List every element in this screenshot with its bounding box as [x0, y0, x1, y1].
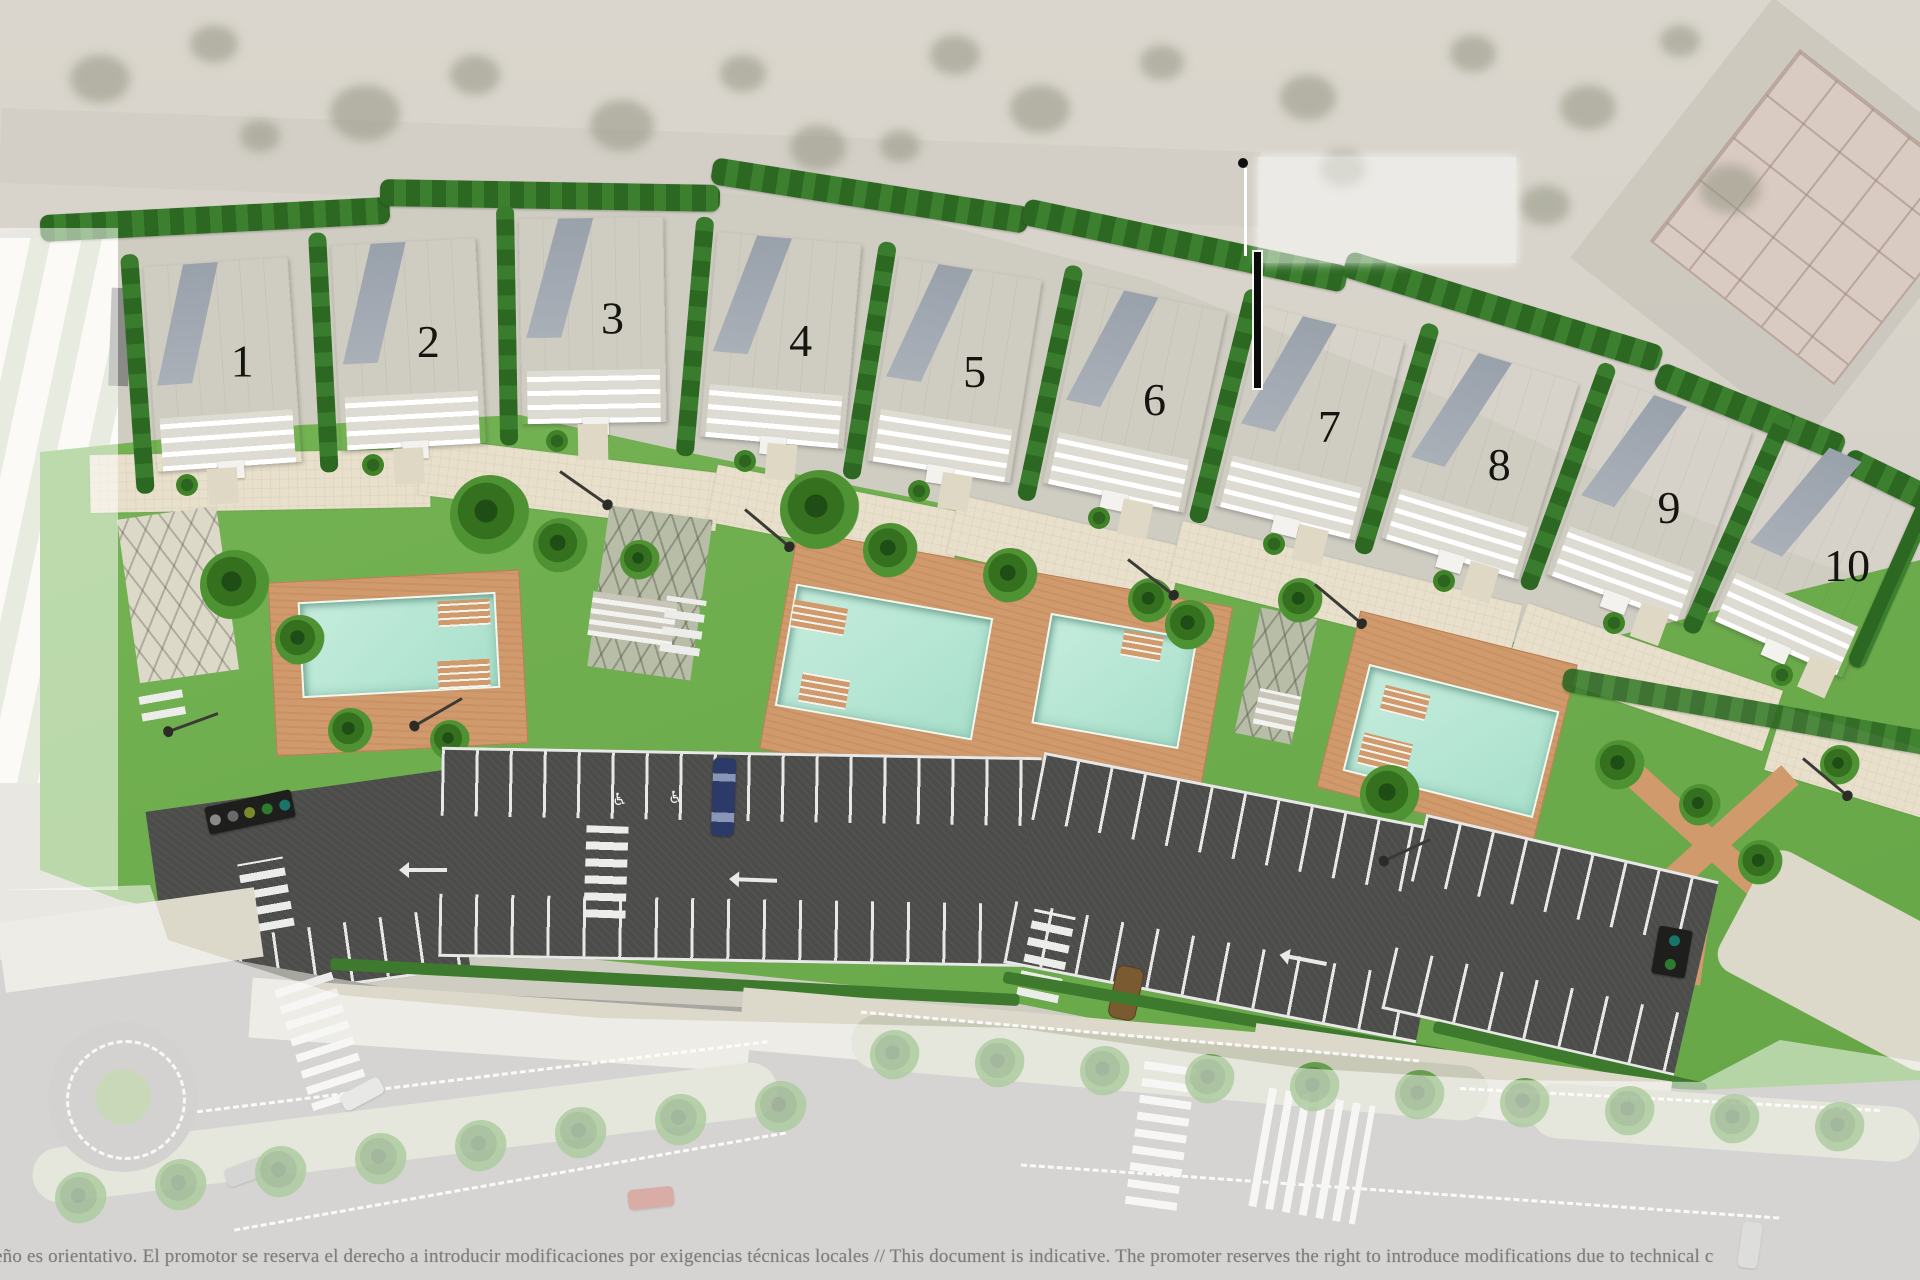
front-path	[1117, 498, 1154, 539]
parking-lot	[438, 747, 1042, 967]
disclaimer-text: eño es orientativo. El promotor se reser…	[0, 1246, 1714, 1267]
building-number: 9	[1658, 481, 1681, 534]
building-number: 4	[789, 314, 812, 367]
tree-icon	[590, 100, 654, 151]
shrub-icon	[1263, 533, 1285, 555]
marker-flag-line	[1244, 168, 1247, 256]
shrub-icon	[546, 430, 568, 452]
crosswalk-icon	[659, 595, 706, 656]
tree-icon	[1140, 45, 1184, 80]
palm-tree-icon	[533, 518, 588, 573]
building-body	[518, 217, 667, 424]
tree-icon	[240, 120, 280, 152]
fade-overlay-left	[0, 228, 118, 890]
palm-tree-icon	[983, 548, 1038, 603]
palm-tree-icon	[328, 708, 373, 753]
parking-bays	[441, 747, 1042, 826]
site-plan-canvas: 12345678910 ♿ ♿	[0, 0, 1920, 1280]
building-body	[699, 232, 861, 449]
tree-icon	[1450, 35, 1496, 72]
pool-steps	[437, 659, 490, 690]
roof-shadow-icon	[157, 262, 217, 385]
hedge-icon	[496, 205, 518, 445]
building-number: 8	[1488, 438, 1511, 491]
front-path	[393, 447, 425, 485]
front-path	[937, 472, 972, 512]
roof-shadow-icon	[713, 236, 792, 354]
palm-tree-icon	[1679, 784, 1721, 826]
parked-car	[711, 758, 737, 837]
building-number: 3	[601, 291, 624, 344]
palm-tree-icon	[863, 523, 918, 578]
building-block-3: 3	[518, 217, 667, 424]
tree-icon	[1700, 165, 1760, 213]
shrub-icon	[1603, 612, 1625, 634]
tree-icon	[330, 85, 400, 141]
disclaimer-bar: eño es orientativo. El promotor se reser…	[0, 1246, 1920, 1268]
building-body	[867, 258, 1042, 483]
shrub-icon	[1771, 664, 1793, 686]
building-number: 1	[231, 334, 254, 387]
building-block-2: 2	[331, 238, 487, 450]
building-body	[143, 257, 302, 472]
building-number: 7	[1318, 400, 1341, 453]
lane-arrow-icon	[405, 868, 447, 872]
tree-icon	[790, 125, 846, 170]
palm-tree-icon	[1738, 840, 1783, 885]
tree-icon	[1520, 185, 1570, 225]
tree-icon	[1010, 85, 1070, 133]
front-path	[207, 467, 239, 505]
shrub-icon	[362, 454, 384, 476]
shrub-icon	[734, 450, 756, 472]
building-block-4: 4	[699, 232, 861, 449]
building-body	[331, 238, 487, 450]
roof-shadow-icon	[886, 264, 973, 382]
tree-icon	[720, 55, 766, 92]
palm-tree-icon	[620, 540, 660, 580]
building-number: 10	[1824, 539, 1870, 592]
disabled-parking-icon: ♿	[668, 788, 683, 808]
crosswalk-icon	[583, 825, 628, 918]
shrub-icon	[1433, 570, 1455, 592]
marker-leader-line	[1254, 252, 1261, 388]
building-block-1: 1	[143, 257, 302, 472]
building-block-5: 5	[867, 258, 1042, 483]
roof-shadow-icon	[343, 242, 406, 364]
palm-tree-icon	[1165, 600, 1215, 650]
parking-bays	[438, 894, 1039, 967]
palm-tree-icon	[200, 550, 270, 620]
palm-tree-icon	[780, 470, 860, 550]
marker-flag-dot	[1238, 158, 1248, 168]
tree-icon	[1660, 25, 1700, 57]
tree-icon	[70, 55, 130, 103]
tree-icon	[930, 35, 980, 75]
tree-icon	[1280, 75, 1336, 120]
label-box-overlay	[1258, 157, 1516, 263]
shrub-icon	[908, 480, 930, 502]
building-number: 6	[1143, 373, 1166, 426]
front-path	[578, 424, 609, 461]
palm-tree-icon	[1595, 740, 1645, 790]
building-number: 5	[963, 345, 986, 398]
roof-shadow-icon	[526, 218, 593, 338]
tree-icon	[190, 25, 238, 63]
tree-icon	[880, 130, 920, 162]
front-path	[764, 443, 797, 481]
shrub-icon	[1088, 507, 1110, 529]
building-number: 2	[417, 315, 440, 368]
hedge-icon	[380, 179, 720, 212]
palm-tree-icon	[275, 615, 325, 665]
tree-icon	[450, 55, 500, 95]
building-terrace	[527, 369, 661, 425]
shrub-icon	[176, 474, 198, 496]
pool-steps	[437, 599, 490, 628]
palm-tree-icon	[450, 475, 530, 555]
tree-icon	[1560, 85, 1616, 130]
disabled-parking-icon: ♿	[612, 790, 627, 810]
